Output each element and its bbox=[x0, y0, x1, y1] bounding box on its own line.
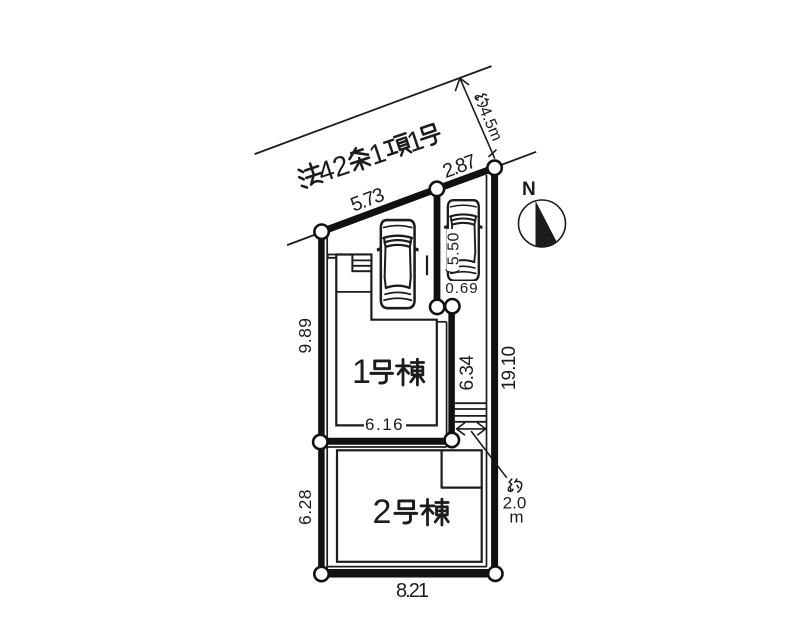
svg-text:(: ( bbox=[444, 269, 461, 274]
svg-text:5.50: 5.50 bbox=[446, 232, 463, 265]
svg-text:6.34: 6.34 bbox=[457, 355, 478, 391]
svg-text:1: 1 bbox=[352, 353, 371, 391]
svg-text:6.28: 6.28 bbox=[295, 489, 315, 525]
svg-text:6.16: 6.16 bbox=[365, 415, 404, 434]
svg-text:19.10: 19.10 bbox=[499, 346, 520, 390]
svg-text:2: 2 bbox=[373, 493, 392, 531]
svg-text:9.89: 9.89 bbox=[295, 317, 315, 353]
svg-text:0.69: 0.69 bbox=[445, 280, 478, 297]
svg-text:m: m bbox=[509, 508, 523, 527]
svg-text:N: N bbox=[522, 179, 536, 200]
svg-text:8.21: 8.21 bbox=[396, 580, 429, 602]
